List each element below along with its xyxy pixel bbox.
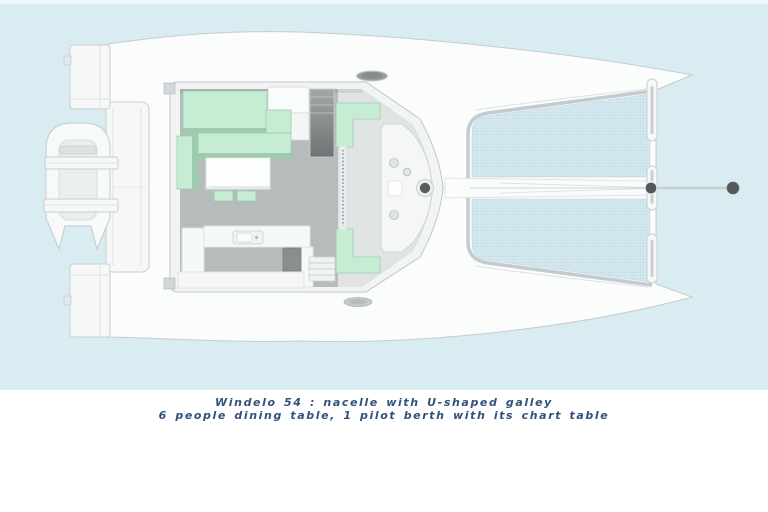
page: Windelo 54 : nacelle with U-shaped galle… [0, 0, 768, 512]
dinghy-transom [60, 146, 96, 154]
pilot-berth [183, 91, 267, 133]
bowsprit-end-dot [727, 182, 740, 195]
caption-line-2: 6 people dining table, 1 pilot berth wit… [0, 409, 768, 422]
top-edge-highlight [0, 0, 768, 4]
wall-bracket-top [164, 83, 175, 94]
stool-1 [214, 191, 233, 201]
catamaran-illustration [0, 0, 768, 390]
starboard-cleat [64, 296, 71, 305]
caption-block: Windelo 54 : nacelle with U-shaped galle… [0, 390, 768, 512]
port-transom [64, 45, 110, 109]
winch-2 [403, 168, 411, 176]
pilot-berth-edge [183, 128, 267, 133]
wall-bracket-bottom [164, 278, 175, 289]
boat-render-scene [0, 0, 768, 390]
trampoline [445, 91, 655, 285]
starboard-transom [64, 264, 110, 337]
winch-1 [390, 159, 399, 168]
bowsprit-forestay [645, 182, 739, 195]
dining-table [206, 158, 270, 189]
galley-aft-counter [178, 272, 304, 288]
stern-platform [106, 102, 149, 272]
forestay-chainplate-dot [645, 182, 657, 194]
galley-left-counter [182, 228, 204, 274]
port-cleat [64, 56, 71, 65]
dinette-sofa-right [266, 110, 291, 133]
galley-faucet [255, 236, 258, 239]
console-locker [388, 181, 402, 196]
cabin-nacelle [164, 82, 443, 292]
chart-table [268, 87, 309, 113]
forward-crossbeam [647, 79, 657, 283]
port-companionway-steps [310, 89, 334, 157]
caption-line-1: Windelo 54 : nacelle with U-shaped galle… [0, 396, 768, 409]
galley-stove-well [283, 248, 301, 271]
winch-3 [390, 211, 399, 220]
mast-step [417, 180, 434, 197]
stool-2 [237, 191, 256, 201]
